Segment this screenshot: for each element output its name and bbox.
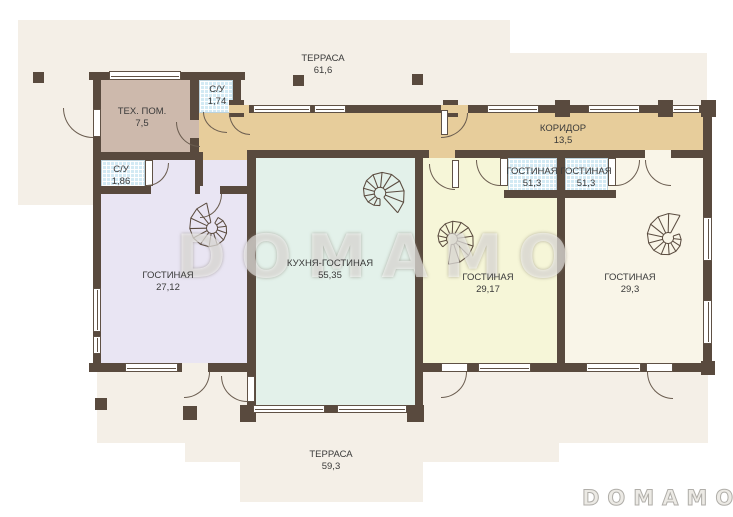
wall-post	[183, 406, 197, 420]
wall	[190, 72, 199, 120]
door-opening	[229, 105, 249, 113]
wall-post	[412, 74, 423, 85]
room-label-living-right: ГОСТИНАЯ29,3	[604, 272, 655, 296]
door-leaf	[441, 363, 468, 372]
door-opening	[645, 150, 671, 158]
room-label-terrace-top: ТЕРРАСА61,6	[301, 53, 344, 77]
door-leaf	[646, 363, 673, 372]
wall-post	[555, 100, 570, 117]
door-opening	[200, 186, 220, 194]
door-opening	[429, 150, 455, 158]
door-leaf	[93, 109, 101, 137]
room-label-bathroom-left: С/У1,86	[112, 164, 131, 188]
window	[672, 105, 700, 113]
window	[93, 288, 101, 332]
spiral-staircase-icon	[640, 210, 696, 266]
watermark-text: DOMAMO	[176, 222, 584, 292]
room-label-corridor: КОРИДОР13,5	[540, 123, 586, 147]
wall	[93, 152, 203, 160]
window	[487, 105, 539, 113]
window	[125, 363, 178, 372]
window	[478, 363, 531, 372]
room-label-living-middle: ГОСТИНАЯ29,17	[462, 272, 513, 296]
door-leaf	[247, 376, 255, 402]
wall-post	[33, 72, 44, 83]
window	[337, 405, 407, 413]
wall	[504, 190, 616, 198]
wall-post	[95, 398, 107, 410]
window	[586, 363, 641, 372]
window	[703, 217, 712, 261]
wall	[247, 150, 712, 158]
room-label-small-room-2: ГОСТИНАЯ51,3	[560, 166, 611, 190]
room-label-kitchen-living: КУХНЯ-ГОСТИНАЯ55,35	[287, 258, 373, 282]
window	[314, 105, 346, 113]
floor-plan: ТЕРРАСА61,6 ТЕХ. ПОМ.7,5 С/У1,74 КОРИДОР…	[0, 0, 733, 517]
window	[93, 336, 101, 354]
window	[588, 105, 640, 113]
room-label-living-left: ГОСТИНАЯ27,12	[142, 270, 193, 294]
room-label-small-room-1: ГОСТИНАЯ51,3	[506, 166, 557, 190]
wall-post	[701, 361, 715, 375]
spiral-staircase-icon	[351, 164, 409, 222]
room-label-bathroom-top: С/У1,74	[208, 84, 227, 108]
wall-post	[701, 100, 716, 117]
door-opening	[182, 363, 208, 372]
room-label-terrace-bottom: ТЕРРАСА59,3	[309, 449, 352, 473]
wall-post	[407, 405, 424, 422]
wall-post	[658, 100, 673, 117]
room-label-tech-room: ТЕХ. ПОМ.7,5	[118, 106, 167, 130]
window	[253, 405, 325, 413]
brand-logo: DOMAMO	[582, 486, 733, 510]
window	[703, 300, 712, 344]
window	[109, 71, 181, 80]
window	[253, 105, 311, 113]
